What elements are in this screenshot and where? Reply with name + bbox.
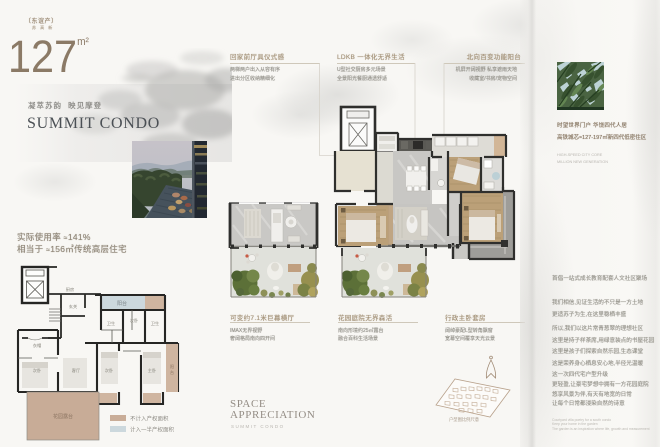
svg-text:计入一半产权面积: 计入一半产权面积	[130, 426, 175, 434]
svg-text:户型图比例尺意: 户型图比例尺意	[449, 416, 479, 423]
svg-text:次卧: 次卧	[130, 317, 138, 324]
svg-text:客厅: 客厅	[72, 367, 80, 374]
svg-text:卫生: 卫生	[151, 320, 159, 326]
svg-text:卫生: 卫生	[107, 320, 115, 326]
svg-text:次卧: 次卧	[33, 367, 41, 374]
svg-text:玄关: 玄关	[69, 303, 77, 310]
svg-text:台: 台	[170, 369, 174, 375]
svg-text:衣帽: 衣帽	[33, 342, 41, 349]
svg-text:厨房: 厨房	[66, 286, 74, 293]
svg-text:阳台: 阳台	[117, 300, 127, 307]
svg-text:主卧: 主卧	[148, 367, 156, 374]
svg-text:次卧: 次卧	[105, 367, 113, 374]
svg-text:阳: 阳	[170, 363, 174, 369]
svg-text:花园露台: 花园露台	[53, 413, 73, 420]
svg-text:不计入产权面积: 不计入产权面积	[130, 415, 169, 423]
